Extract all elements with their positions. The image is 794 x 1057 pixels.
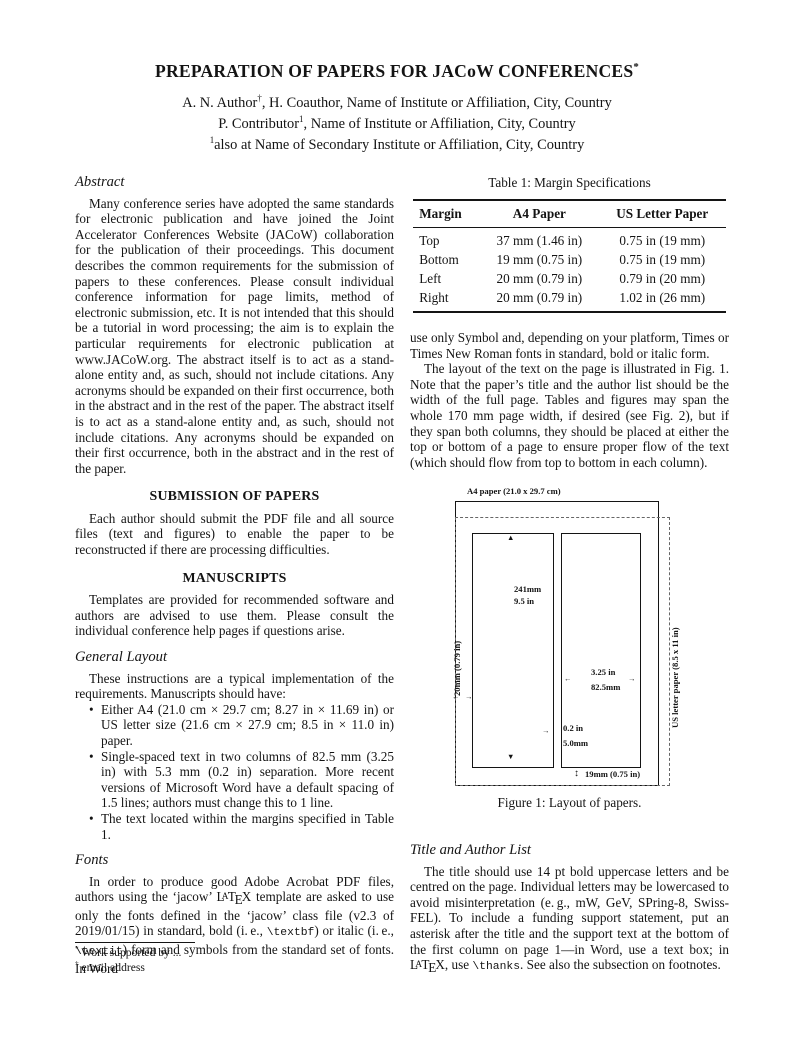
table-cell: 20 mm (0.79 in) xyxy=(480,288,599,312)
column-height-mm-label: 241mm xyxy=(514,584,541,595)
footnote: * Work supported by ... xyxy=(75,946,394,961)
table-row: Right20 mm (0.79 in)1.02 in (26 mm) xyxy=(413,288,726,312)
a4-paper-label: A4 paper (21.0 x 29.7 cm) xyxy=(467,486,561,497)
table-cell: 0.75 in (19 mm) xyxy=(599,228,726,251)
manuscripts-paragraph: Templates are provided for recommended s… xyxy=(75,592,394,639)
table-header-cell: A4 Paper xyxy=(480,200,599,228)
us-letter-label: US letter paper (8.5 x 11 in) xyxy=(670,558,681,728)
up-arrow-icon xyxy=(507,534,514,542)
footnote-lines: * Work supported by ...† email address xyxy=(75,946,394,975)
fonts-continued-paragraph: use only Symbol and, depending on your p… xyxy=(410,330,729,361)
column-sep-mm-label: 5.0mm xyxy=(563,738,588,749)
table-header-cell: Margin xyxy=(413,200,480,228)
paper-page: PREPARATION OF PAPERS FOR JACoW CONFEREN… xyxy=(0,0,794,1057)
bullet-item: The text located within the margins spec… xyxy=(87,811,394,842)
column-sep-arrow-icon xyxy=(542,727,550,735)
title-author-list-block: Title and Author List The title should u… xyxy=(410,843,729,976)
bottom-margin-arrow-icon xyxy=(574,769,579,779)
table-row: Top37 mm (1.46 in)0.75 in (19 mm) xyxy=(413,228,726,251)
table-header-row: MarginA4 PaperUS Letter Paper xyxy=(413,200,726,228)
layout-paragraph: The layout of the text on the page is il… xyxy=(410,361,729,470)
author-list: A. N. Author†, H. Coauthor, Name of Inst… xyxy=(0,93,794,156)
table-body: Top37 mm (1.46 in)0.75 in (19 mm)Bottom1… xyxy=(413,228,726,312)
body-text-block: use only Symbol and, depending on your p… xyxy=(410,330,729,470)
footnote: † email address xyxy=(75,961,394,976)
table-row: Left20 mm (0.79 in)0.79 in (20 mm) xyxy=(413,269,726,288)
manuscripts-heading: MANUSCRIPTS xyxy=(75,571,394,587)
general-layout-heading: General Layout xyxy=(75,650,394,666)
table-cell: 20 mm (0.79 in) xyxy=(480,269,599,288)
author-line: 1also at Name of Secondary Institute or … xyxy=(0,135,794,156)
column-width-arrow-right-icon xyxy=(628,675,636,683)
left-margin-arrow-left-icon xyxy=(452,693,460,701)
table-cell: 37 mm (1.46 in) xyxy=(480,228,599,251)
bottom-margin-label: 19mm (0.75 in) xyxy=(585,769,640,780)
footnote-block: * Work supported by ...† email address xyxy=(75,942,394,975)
table-caption: Table 1: Margin Specifications xyxy=(410,175,729,191)
table-cell: 1.02 in (26 mm) xyxy=(599,288,726,312)
table-cell: 0.79 in (20 mm) xyxy=(599,269,726,288)
left-margin-label: 20mm (0.79 in) xyxy=(452,581,463,696)
bullet-item: Single-spaced text in two columns of 82.… xyxy=(87,749,394,811)
author-line: P. Contributor1, Name of Institute or Af… xyxy=(0,114,794,135)
submission-heading: SUBMISSION OF PAPERS xyxy=(75,489,394,505)
column-sep-in-label: 0.2 in xyxy=(563,723,583,734)
title-author-list-paragraph: The title should use 14 pt bold uppercas… xyxy=(410,864,729,976)
abstract-paragraph: Many conference series have adopted the … xyxy=(75,196,394,477)
table-cell: 19 mm (0.75 in) xyxy=(480,250,599,269)
figure-caption: Figure 1: Layout of papers. xyxy=(410,795,729,811)
margin-specifications-table: MarginA4 PaperUS Letter Paper Top37 mm (… xyxy=(413,199,726,314)
table-cell: Right xyxy=(413,288,480,312)
table-cell: Bottom xyxy=(413,250,480,269)
table-cell: Left xyxy=(413,269,480,288)
column-width-arrow-left-icon xyxy=(564,675,572,683)
paper-header: PREPARATION OF PAPERS FOR JACoW CONFEREN… xyxy=(0,61,794,156)
margin-table-block: Table 1: Margin Specifications MarginA4 … xyxy=(410,175,729,313)
table-cell: 0.75 in (19 mm) xyxy=(599,250,726,269)
fonts-heading: Fonts xyxy=(75,853,394,869)
left-margin-arrow-right-icon xyxy=(465,693,473,701)
right-column: Table 1: Margin Specifications MarginA4 … xyxy=(410,175,729,1000)
title-author-list-heading: Title and Author List xyxy=(410,843,729,859)
column-height-in-label: 9.5 in xyxy=(514,596,534,607)
table-row: Bottom19 mm (0.75 in)0.75 in (19 mm) xyxy=(413,250,726,269)
figure-1: A4 paper (21.0 x 29.7 cm) 241mm 9.5 in 2… xyxy=(410,486,729,811)
column-width-in-label: 3.25 in xyxy=(591,667,615,678)
left-column: Abstract Many conference series have ado… xyxy=(75,175,394,976)
submission-paragraph: Each author should submit the PDF file a… xyxy=(75,511,394,558)
table-cell: Top xyxy=(413,228,480,251)
table-header-cell: US Letter Paper xyxy=(599,200,726,228)
down-arrow-icon xyxy=(507,753,514,761)
abstract-heading: Abstract xyxy=(75,175,394,191)
general-layout-bullet-list: Either A4 (21.0 cm × 29.7 cm; 8.27 in × … xyxy=(87,702,394,842)
general-layout-intro: These instructions are a typical impleme… xyxy=(75,671,394,702)
column-width-mm-label: 82.5mm xyxy=(591,682,620,693)
paper-title: PREPARATION OF PAPERS FOR JACoW CONFEREN… xyxy=(0,61,794,82)
author-line: A. N. Author†, H. Coauthor, Name of Inst… xyxy=(0,93,794,114)
bullet-item: Either A4 (21.0 cm × 29.7 cm; 8.27 in × … xyxy=(87,702,394,749)
footnote-rule xyxy=(75,942,195,943)
page-layout-diagram: A4 paper (21.0 x 29.7 cm) 241mm 9.5 in 2… xyxy=(410,486,729,786)
